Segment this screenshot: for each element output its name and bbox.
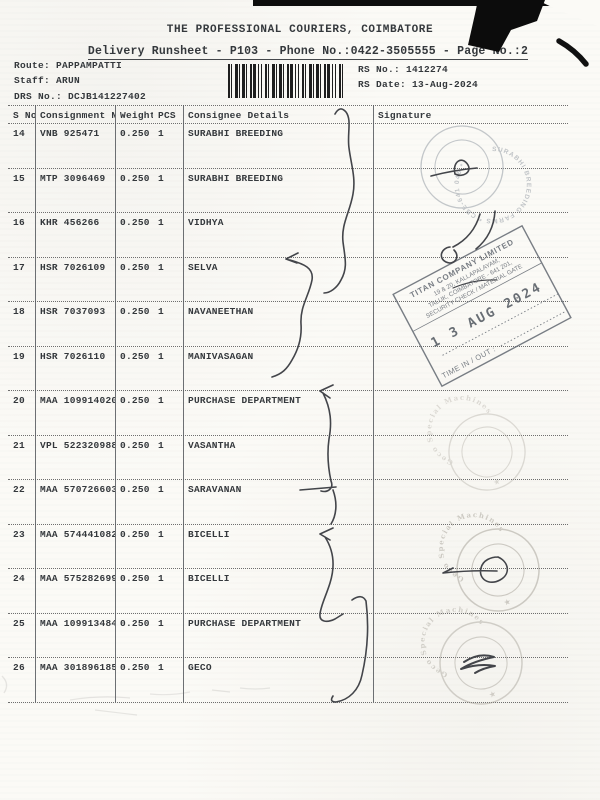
cell-pcs: 1 <box>153 213 183 257</box>
cell-consignment: KHR 456266 <box>35 213 115 257</box>
cell-pcs: 1 <box>153 569 183 613</box>
drs-label: DRS No.: <box>14 91 62 102</box>
cell-consignment: MAA 109913484 <box>35 614 115 658</box>
cell-consignment: VPL 522320988 <box>35 436 115 480</box>
staff-value: ARUN <box>56 75 80 86</box>
table-row: 26 MAA 301896185 0.250 1 GECO <box>8 658 568 703</box>
cell-weight: 0.250 <box>115 525 153 569</box>
cell-consignee: SARAVANAN <box>183 480 373 524</box>
cell-s-no: 15 <box>8 169 35 213</box>
table-row: 18 HSR 7037093 0.250 1 NAVANEETHAN <box>8 302 568 347</box>
cell-consignment: HSR 7037093 <box>35 302 115 346</box>
rs-no-label: RS No.: <box>358 64 400 75</box>
cell-weight: 0.250 <box>115 614 153 658</box>
scan-artifact-top-bar <box>253 0 600 27</box>
cell-signature <box>373 391 568 435</box>
rs-date-label: RS Date: <box>358 79 406 90</box>
cell-signature <box>373 124 568 168</box>
cell-consignee: MANIVASAGAN <box>183 347 373 391</box>
column-divider <box>183 105 184 702</box>
cell-weight: 0.250 <box>115 213 153 257</box>
cell-signature <box>373 169 568 213</box>
cell-weight: 0.250 <box>115 391 153 435</box>
table-header-row: S No Consignment No Weight PCS Consignee… <box>8 105 568 124</box>
cell-signature <box>373 213 568 257</box>
cell-s-no: 25 <box>8 614 35 658</box>
cell-pcs: 1 <box>153 391 183 435</box>
route-line: Route: PAPPAMPATTI <box>14 60 122 71</box>
cell-s-no: 26 <box>8 658 35 702</box>
table-row: 14 VNB 925471 0.250 1 SURABHI BREEDING <box>8 124 568 169</box>
table-row: 21 VPL 522320988 0.250 1 VASANTHA <box>8 436 568 481</box>
cell-s-no: 18 <box>8 302 35 346</box>
header-consignment: Consignment No <box>35 106 115 123</box>
cell-signature <box>373 525 568 569</box>
cell-weight: 0.250 <box>115 569 153 613</box>
cell-consignee: BICELLI <box>183 569 373 613</box>
cell-signature <box>373 658 568 702</box>
header-signature: Signature <box>373 106 568 123</box>
header-consignee: Consignee Details <box>183 106 373 123</box>
table-row: 17 HSR 7026109 0.250 1 SELVA <box>8 258 568 303</box>
cell-consignee: SURABHI BREEDING <box>183 169 373 213</box>
drs-line: DRS No.: DCJB141227402 <box>14 91 146 102</box>
cell-consignee: SELVA <box>183 258 373 302</box>
cell-weight: 0.250 <box>115 258 153 302</box>
header-pcs: PCS <box>153 106 183 123</box>
cell-weight: 0.250 <box>115 436 153 480</box>
cell-pcs: 1 <box>153 169 183 213</box>
rs-no-value: 1412274 <box>406 64 448 75</box>
cell-consignment: MAA 575282699 <box>35 569 115 613</box>
cell-pcs: 1 <box>153 302 183 346</box>
cell-signature <box>373 569 568 613</box>
column-divider <box>373 105 374 702</box>
cell-s-no: 24 <box>8 569 35 613</box>
cell-weight: 0.250 <box>115 347 153 391</box>
cell-consignee: GECO <box>183 658 373 702</box>
cell-consignment: MAA 109914020 <box>35 391 115 435</box>
cell-consignment: VNB 925471 <box>35 124 115 168</box>
cell-s-no: 21 <box>8 436 35 480</box>
cell-s-no: 19 <box>8 347 35 391</box>
rs-date-line: RS Date: 13-Aug-2024 <box>358 79 478 90</box>
column-divider <box>35 105 36 702</box>
cell-consignee: PURCHASE DEPARTMENT <box>183 391 373 435</box>
cell-consignment: MAA 570726603 <box>35 480 115 524</box>
staff-label: Staff: <box>14 75 50 86</box>
cell-pcs: 1 <box>153 480 183 524</box>
cell-s-no: 16 <box>8 213 35 257</box>
cell-s-no: 17 <box>8 258 35 302</box>
cell-weight: 0.250 <box>115 124 153 168</box>
scanned-delivery-runsheet: THE PROFESSIONAL COURIERS, COIMBATORE De… <box>0 0 600 800</box>
table-row: 22 MAA 570726603 0.250 1 SARAVANAN <box>8 480 568 525</box>
drs-value: DCJB141227402 <box>68 91 146 102</box>
cell-s-no: 14 <box>8 124 35 168</box>
cell-pcs: 1 <box>153 124 183 168</box>
runsheet-table: S No Consignment No Weight PCS Consignee… <box>8 105 568 703</box>
cell-weight: 0.250 <box>115 169 153 213</box>
route-value: PAPPAMPATTI <box>56 60 122 71</box>
cell-pcs: 1 <box>153 614 183 658</box>
cell-consignment: MAA 574441082 <box>35 525 115 569</box>
rs-no-line: RS No.: 1412274 <box>358 64 448 75</box>
cell-consignee: PURCHASE DEPARTMENT <box>183 614 373 658</box>
cell-consignee: SURABHI BREEDING <box>183 124 373 168</box>
cell-s-no: 20 <box>8 391 35 435</box>
table-row: 16 KHR 456266 0.250 1 VIDHYA <box>8 213 568 258</box>
cell-signature <box>373 614 568 658</box>
cell-s-no: 23 <box>8 525 35 569</box>
cell-s-no: 22 <box>8 480 35 524</box>
cell-consignment: HSR 7026110 <box>35 347 115 391</box>
table-row: 20 MAA 109914020 0.250 1 PURCHASE DEPART… <box>8 391 568 436</box>
route-label: Route: <box>14 60 50 71</box>
table-row: 24 MAA 575282699 0.250 1 BICELLI <box>8 569 568 614</box>
cell-pcs: 1 <box>153 658 183 702</box>
table-row: 19 HSR 7026110 0.250 1 MANIVASAGAN <box>8 347 568 392</box>
runsheet-title-row: Delivery Runsheet - P103 - Phone No.:042… <box>0 41 600 60</box>
table-row: 23 MAA 574441082 0.250 1 BICELLI <box>8 525 568 570</box>
cell-consignee: VASANTHA <box>183 436 373 480</box>
cell-signature <box>373 436 568 480</box>
company-title: THE PROFESSIONAL COURIERS, COIMBATORE <box>0 24 600 36</box>
runsheet-barcode <box>228 64 346 98</box>
cell-consignee: VIDHYA <box>183 213 373 257</box>
cell-pcs: 1 <box>153 347 183 391</box>
cell-consignee: BICELLI <box>183 525 373 569</box>
cell-pcs: 1 <box>153 258 183 302</box>
header-s-no: S No <box>8 106 35 123</box>
cell-consignment: MAA 301896185 <box>35 658 115 702</box>
cell-weight: 0.250 <box>115 480 153 524</box>
cell-pcs: 1 <box>153 525 183 569</box>
cell-signature <box>373 302 568 346</box>
cell-consignment: MTP 3096469 <box>35 169 115 213</box>
column-divider <box>115 105 116 702</box>
table-row: 25 MAA 109913484 0.250 1 PURCHASE DEPART… <box>8 614 568 659</box>
cell-signature <box>373 258 568 302</box>
cell-consignee: NAVANEETHAN <box>183 302 373 346</box>
table-row: 15 MTP 3096469 0.250 1 SURABHI BREEDING <box>8 169 568 214</box>
staff-line: Staff: ARUN <box>14 75 80 86</box>
header-weight: Weight <box>115 106 153 123</box>
runsheet-title: Delivery Runsheet - P103 - Phone No.:042… <box>88 45 528 60</box>
cell-weight: 0.250 <box>115 658 153 702</box>
cell-signature <box>373 480 568 524</box>
cell-pcs: 1 <box>153 436 183 480</box>
rs-date-value: 13-Aug-2024 <box>412 79 478 90</box>
cell-consignment: HSR 7026109 <box>35 258 115 302</box>
cell-signature <box>373 347 568 391</box>
cell-weight: 0.250 <box>115 302 153 346</box>
